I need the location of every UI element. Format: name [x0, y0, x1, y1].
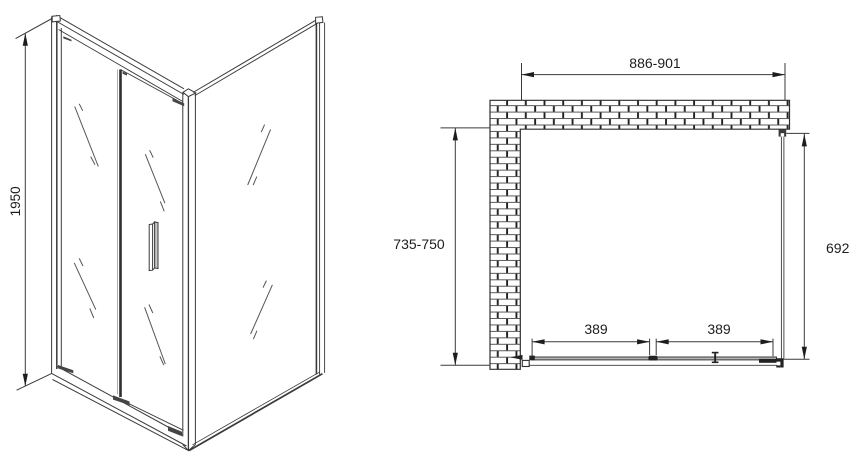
svg-text:735-750: 735-750: [393, 236, 445, 252]
svg-text:389: 389: [584, 321, 608, 337]
svg-text:886-901: 886-901: [629, 55, 681, 71]
svg-text:692: 692: [826, 240, 850, 256]
svg-text:1950: 1950: [8, 186, 23, 216]
svg-text:389: 389: [707, 321, 731, 337]
